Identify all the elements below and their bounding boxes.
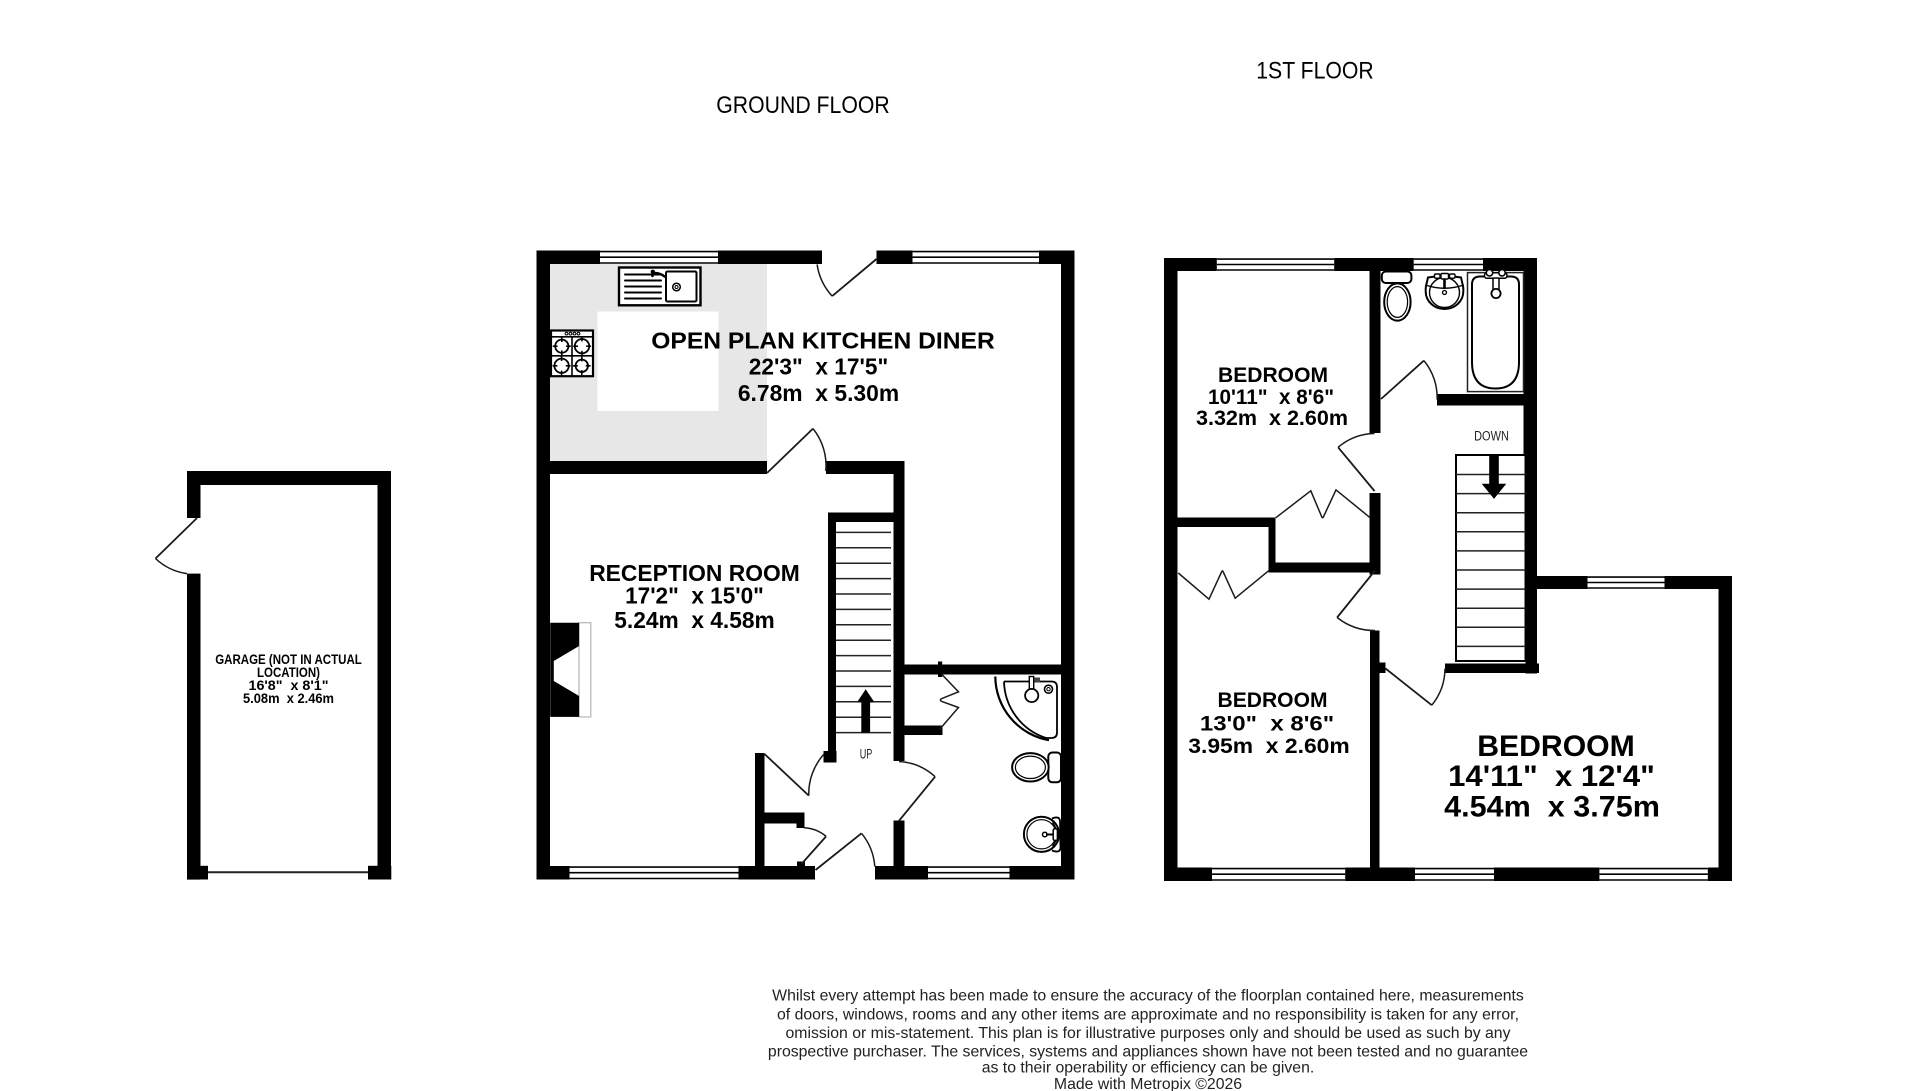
svg-text:3.95m x 2.60m: 3.95m x 2.60m	[1188, 735, 1350, 758]
svg-text:1ST FLOOR: 1ST FLOOR	[1256, 58, 1374, 85]
svg-text:3.32m x 2.60m: 3.32m x 2.60m	[1196, 407, 1348, 430]
svg-text:prospective purchaser. The ser: prospective purchaser. The services, sys…	[768, 1043, 1528, 1060]
svg-text:BEDROOM: BEDROOM	[1218, 689, 1328, 712]
svg-text:DOWN: DOWN	[1474, 429, 1509, 444]
svg-text:OPEN PLAN KITCHEN DINER: OPEN PLAN KITCHEN DINER	[651, 328, 995, 354]
svg-text:BEDROOM: BEDROOM	[1477, 730, 1635, 763]
svg-text:Whilst every attempt has been: Whilst every attempt has been made to en…	[772, 988, 1524, 1005]
svg-text:5.08m x 2.46m: 5.08m x 2.46m	[243, 691, 334, 706]
svg-text:10'11" x 8'6": 10'11" x 8'6"	[1208, 386, 1334, 409]
svg-text:BEDROOM: BEDROOM	[1218, 364, 1328, 387]
svg-text:GROUND FLOOR: GROUND FLOOR	[716, 92, 889, 119]
svg-text:22'3" x 17'5": 22'3" x 17'5"	[749, 354, 889, 380]
svg-text:Made with Metropix ©2026: Made with Metropix ©2026	[1054, 1076, 1242, 1091]
svg-text:as to their operability or eff: as to their operability or efficiency ca…	[982, 1060, 1315, 1077]
svg-text:omission or mis-statement. Thi: omission or mis-statement. This plan is …	[786, 1025, 1511, 1042]
svg-text:17'2" x 15'0": 17'2" x 15'0"	[625, 583, 764, 609]
svg-text:4.54m x 3.75m: 4.54m x 3.75m	[1444, 791, 1660, 824]
svg-text:of doors, windows, rooms and a: of doors, windows, rooms and any other i…	[777, 1007, 1519, 1024]
svg-text:14'11" x 12'4": 14'11" x 12'4"	[1448, 760, 1655, 793]
svg-text:6.78m x 5.30m: 6.78m x 5.30m	[738, 380, 899, 406]
svg-text:13'0" x 8'6": 13'0" x 8'6"	[1200, 713, 1334, 736]
svg-text:5.24m x 4.58m: 5.24m x 4.58m	[614, 607, 775, 633]
svg-text:UP: UP	[860, 747, 873, 762]
